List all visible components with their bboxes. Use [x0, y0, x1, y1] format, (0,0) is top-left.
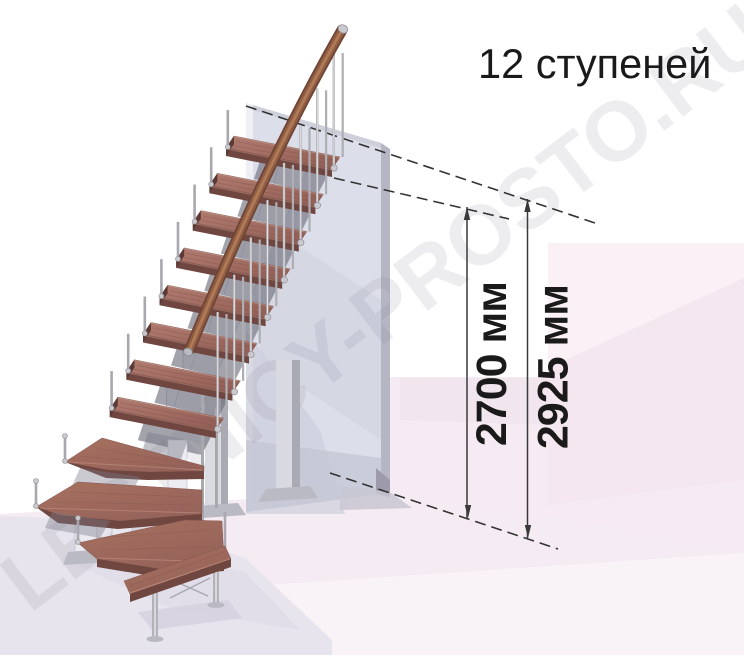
svg-text:2700 мм: 2700 мм	[468, 282, 516, 446]
svg-text:2925 мм: 2925 мм	[530, 285, 578, 449]
svg-text:12 ступеней: 12 ступеней	[478, 40, 711, 87]
